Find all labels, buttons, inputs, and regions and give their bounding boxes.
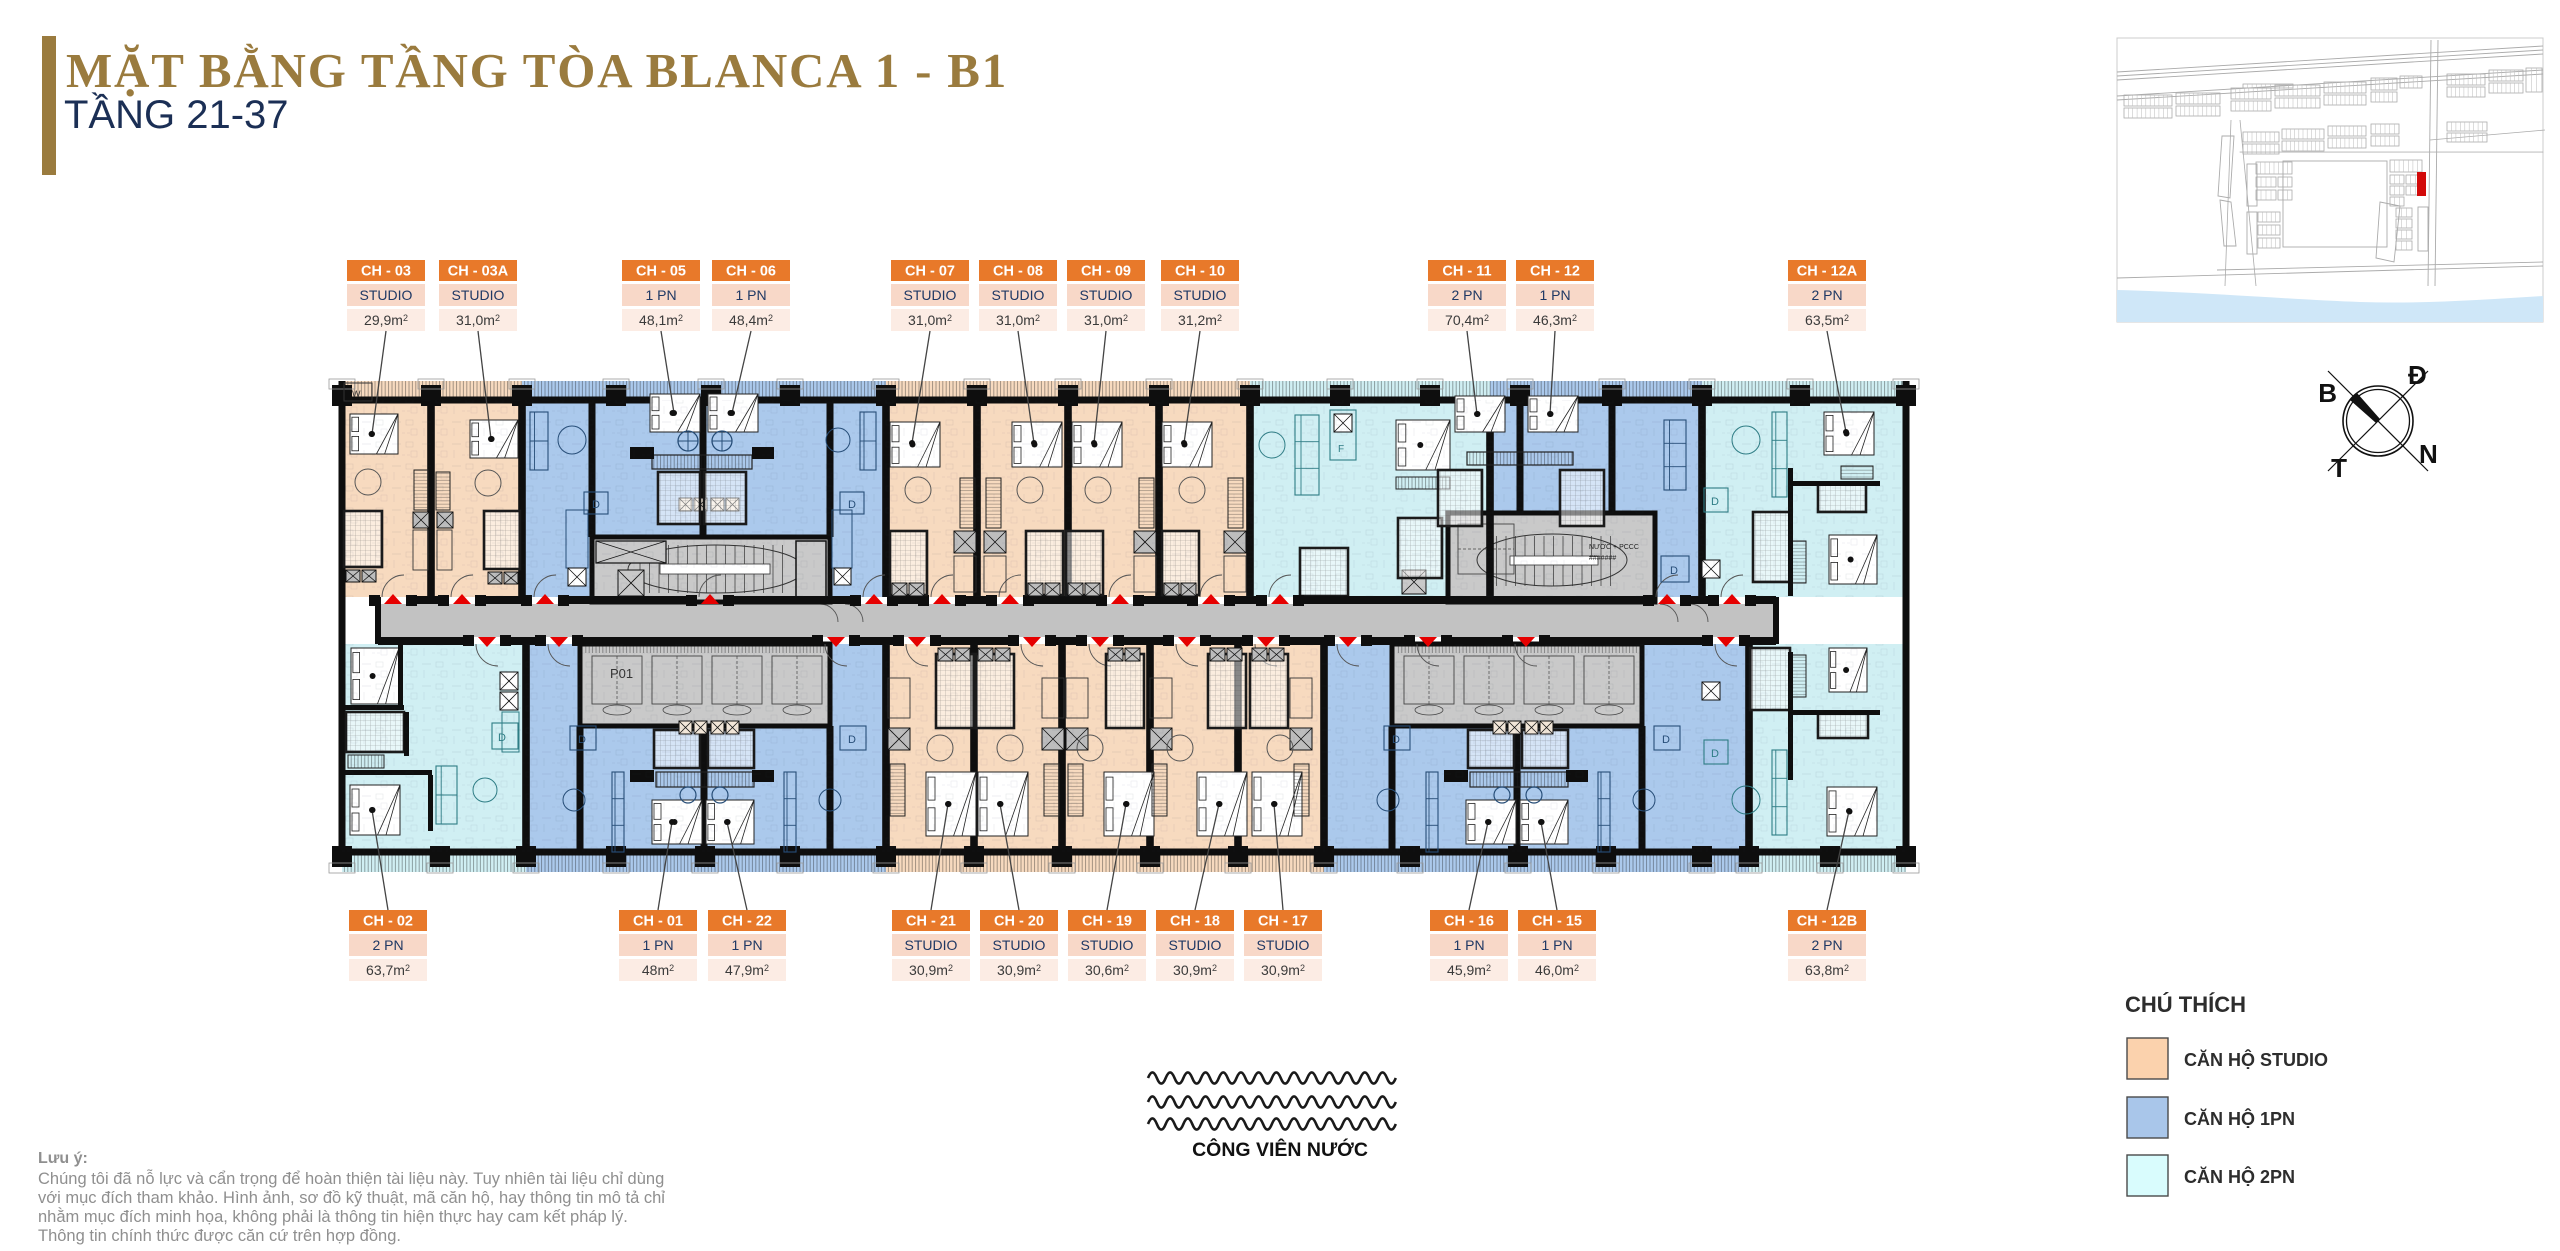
svg-text:CH - 12A: CH - 12A (1797, 264, 1858, 280)
svg-text:CH - 12B: CH - 12B (1797, 914, 1857, 930)
svg-text:STUDIO: STUDIO (1080, 287, 1133, 303)
svg-text:CH - 17: CH - 17 (1258, 914, 1308, 930)
svg-text:2 PN: 2 PN (1451, 287, 1482, 303)
svg-text:CÔNG VIÊN NƯỚC: CÔNG VIÊN NƯỚC (1192, 1137, 1368, 1161)
svg-text:CH - 10: CH - 10 (1175, 264, 1225, 280)
svg-text:Thông tin chính thức được căn: Thông tin chính thức được căn cứ trên hợ… (38, 1227, 401, 1245)
svg-text:31,0m2: 31,0m2 (996, 312, 1040, 328)
svg-text:31,0m2: 31,0m2 (908, 312, 952, 328)
svg-text:1 PN: 1 PN (1453, 937, 1484, 953)
svg-text:1 PN: 1 PN (1541, 937, 1572, 953)
svg-text:STUDIO: STUDIO (905, 937, 958, 953)
svg-text:CĂN HỘ 1PN: CĂN HỘ 1PN (2184, 1108, 2295, 1129)
svg-text:CĂN HỘ STUDIO: CĂN HỘ STUDIO (2184, 1049, 2328, 1070)
svg-text:Chúng tôi đã nỗ lực và cẩn trọ: Chúng tôi đã nỗ lực và cẩn trọng để hoàn… (38, 1169, 664, 1188)
svg-text:STUDIO: STUDIO (452, 287, 505, 303)
svg-text:48,1m2: 48,1m2 (639, 312, 683, 328)
svg-text:CH - 15: CH - 15 (1532, 914, 1582, 930)
svg-text:1 PN: 1 PN (642, 937, 673, 953)
svg-text:30,9m2: 30,9m2 (1173, 962, 1217, 978)
svg-text:63,8m2: 63,8m2 (1805, 962, 1849, 978)
svg-text:CH - 21: CH - 21 (906, 914, 956, 930)
svg-text:CHÚ THÍCH: CHÚ THÍCH (2125, 992, 2246, 1017)
svg-text:STUDIO: STUDIO (1081, 937, 1134, 953)
svg-text:1 PN: 1 PN (645, 287, 676, 303)
svg-text:STUDIO: STUDIO (1169, 937, 1222, 953)
svg-text:CH - 11: CH - 11 (1442, 264, 1491, 280)
svg-text:1 PN: 1 PN (731, 937, 762, 953)
svg-text:với mục đích tham khảo. Hình ả: với mục đích tham khảo. Hình ảnh, sơ đồ … (38, 1189, 665, 1207)
svg-text:30,6m2: 30,6m2 (1085, 962, 1129, 978)
svg-text:63,7m2: 63,7m2 (366, 962, 410, 978)
svg-text:STUDIO: STUDIO (1257, 937, 1310, 953)
svg-text:Đ: Đ (2408, 360, 2427, 390)
svg-text:46,3m2: 46,3m2 (1533, 312, 1577, 328)
svg-text:STUDIO: STUDIO (992, 287, 1045, 303)
svg-text:nhằm mục đích minh họa, không: nhằm mục đích minh họa, không phải là th… (38, 1207, 628, 1226)
svg-text:STUDIO: STUDIO (1174, 287, 1227, 303)
svg-text:29,9m2: 29,9m2 (364, 312, 408, 328)
svg-text:CH - 05: CH - 05 (636, 264, 686, 280)
svg-text:CH - 08: CH - 08 (993, 264, 1043, 280)
svg-text:2 PN: 2 PN (372, 937, 403, 953)
svg-text:B: B (2318, 378, 2337, 408)
svg-text:CH - 03A: CH - 03A (448, 264, 509, 280)
svg-text:2 PN: 2 PN (1811, 287, 1842, 303)
svg-text:30,9m2: 30,9m2 (1261, 962, 1305, 978)
svg-text:47,9m2: 47,9m2 (725, 962, 769, 978)
svg-text:Lưu ý:: Lưu ý: (38, 1150, 88, 1167)
svg-text:CH - 06: CH - 06 (726, 264, 776, 280)
svg-text:CH - 22: CH - 22 (722, 914, 772, 930)
svg-text:N: N (2419, 439, 2438, 469)
svg-text:CH - 12: CH - 12 (1530, 264, 1580, 280)
svg-text:STUDIO: STUDIO (993, 937, 1046, 953)
svg-text:CH - 09: CH - 09 (1081, 264, 1131, 280)
svg-text:CĂN HỘ 2PN: CĂN HỘ 2PN (2184, 1166, 2295, 1187)
svg-text:1 PN: 1 PN (1539, 287, 1570, 303)
svg-text:CH - 18: CH - 18 (1170, 914, 1220, 930)
svg-text:30,9m2: 30,9m2 (997, 962, 1041, 978)
svg-text:CH - 19: CH - 19 (1082, 914, 1132, 930)
svg-text:CH - 20: CH - 20 (994, 914, 1044, 930)
svg-text:48,4m2: 48,4m2 (729, 312, 773, 328)
svg-text:31,0m2: 31,0m2 (1084, 312, 1128, 328)
svg-text:TẦNG 21-37: TẦNG 21-37 (64, 91, 289, 137)
svg-text:T: T (2331, 453, 2347, 483)
svg-text:70,4m2: 70,4m2 (1445, 312, 1489, 328)
svg-text:1 PN: 1 PN (735, 287, 766, 303)
svg-text:STUDIO: STUDIO (360, 287, 413, 303)
svg-text:30,9m2: 30,9m2 (909, 962, 953, 978)
svg-text:CH - 03: CH - 03 (361, 264, 411, 280)
svg-text:46,0m2: 46,0m2 (1535, 962, 1579, 978)
svg-text:STUDIO: STUDIO (904, 287, 957, 303)
svg-text:CH - 01: CH - 01 (633, 914, 683, 930)
svg-text:W: W (352, 389, 361, 399)
svg-text:MẶT BẰNG TẦNG TÒA BLANCA 1 - B: MẶT BẰNG TẦNG TÒA BLANCA 1 - B1 (66, 43, 1008, 98)
svg-text:45,9m2: 45,9m2 (1447, 962, 1491, 978)
svg-text:31,2m2: 31,2m2 (1178, 312, 1222, 328)
svg-text:31,0m2: 31,0m2 (456, 312, 500, 328)
svg-text:2 PN: 2 PN (1811, 937, 1842, 953)
svg-text:CH - 07: CH - 07 (905, 264, 955, 280)
svg-text:63,5m2: 63,5m2 (1805, 312, 1849, 328)
svg-text:CH - 16: CH - 16 (1444, 914, 1494, 930)
svg-text:CH - 02: CH - 02 (363, 914, 413, 930)
